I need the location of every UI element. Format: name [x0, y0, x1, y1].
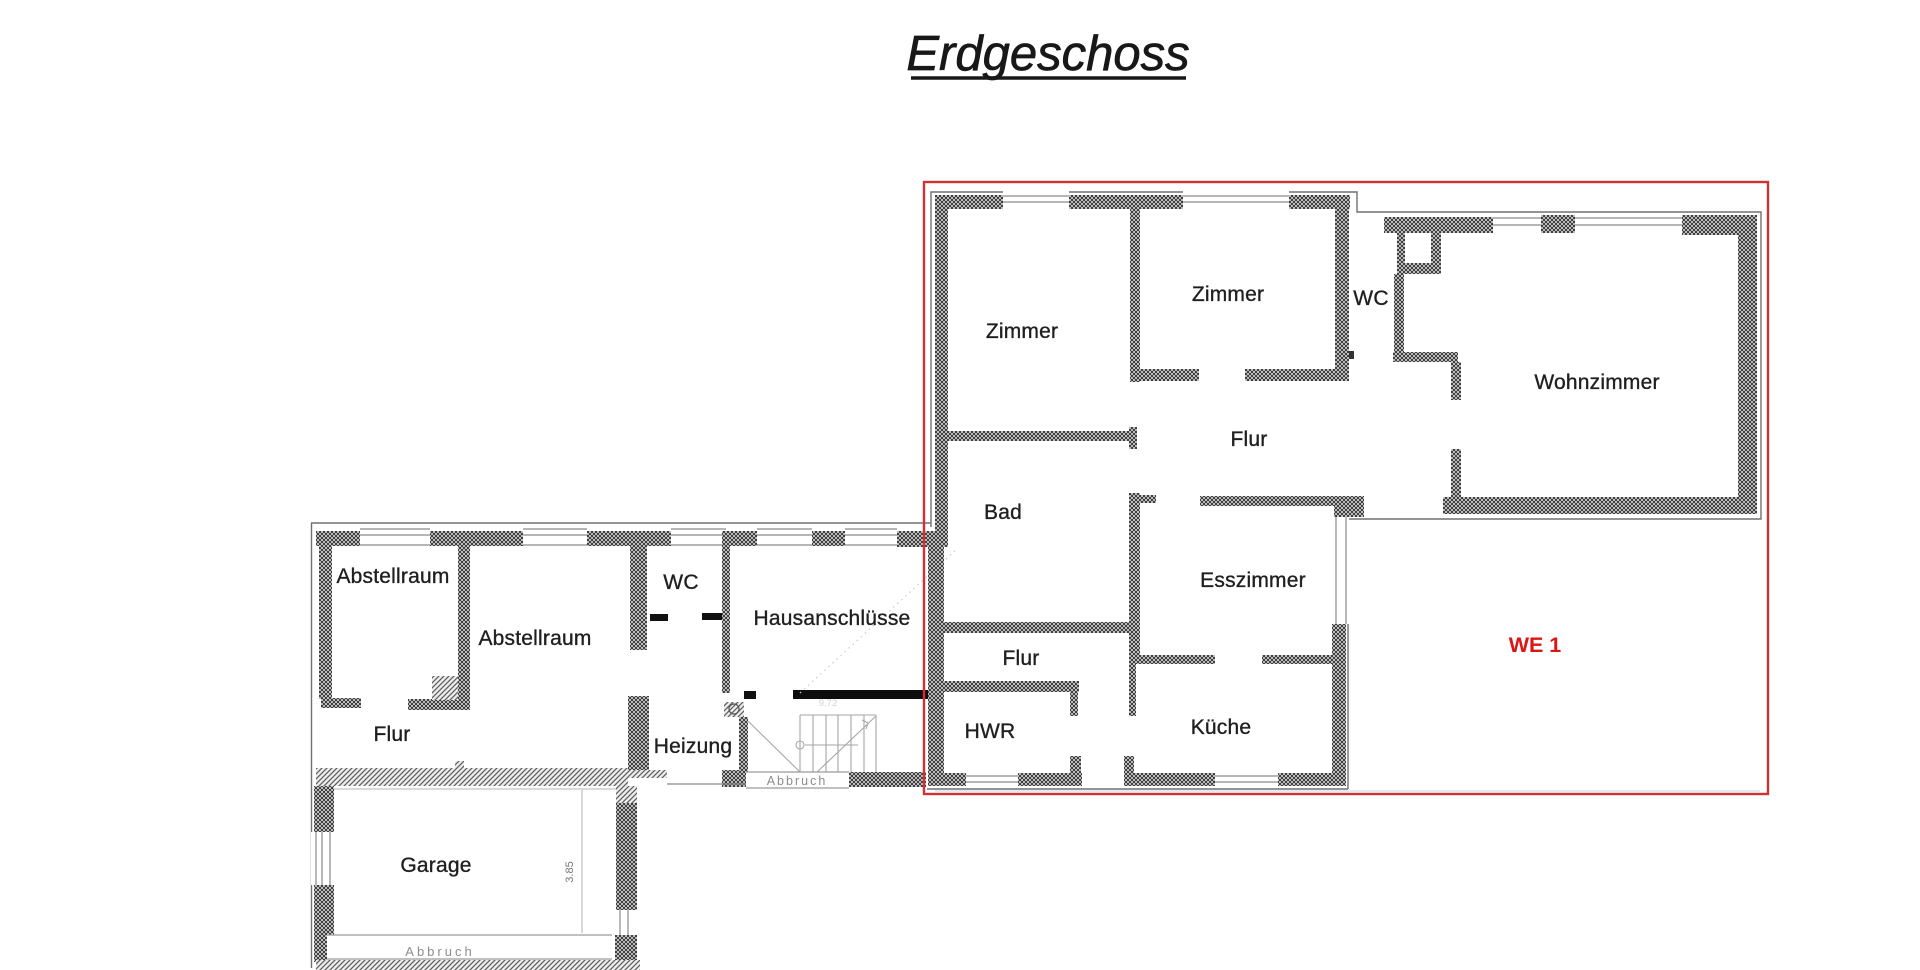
svg-text:Abbruch: Abbruch	[405, 944, 474, 959]
svg-text:9.72: 9.72	[819, 698, 838, 709]
svg-text:Esszimmer: Esszimmer	[1200, 569, 1306, 592]
svg-text:WE 1: WE 1	[1509, 633, 1562, 657]
svg-text:Wohnzimmer: Wohnzimmer	[1534, 371, 1659, 394]
svg-text:Flur: Flur	[374, 723, 411, 746]
svg-text:WC: WC	[663, 571, 698, 594]
svg-text:Küche: Küche	[1191, 716, 1252, 739]
svg-text:Garage: Garage	[400, 854, 471, 877]
svg-text:Hausanschlüsse: Hausanschlüsse	[754, 607, 911, 630]
svg-text:WC: WC	[1353, 287, 1388, 310]
svg-text:HWR: HWR	[965, 720, 1016, 743]
svg-text:Zimmer: Zimmer	[986, 320, 1058, 343]
svg-text:Abstellraum: Abstellraum	[336, 565, 449, 588]
svg-text:Flur: Flur	[1231, 428, 1268, 451]
svg-text:Flur: Flur	[1003, 647, 1040, 670]
svg-text:Erdgeschoss: Erdgeschoss	[906, 27, 1189, 81]
svg-text:Zimmer: Zimmer	[1192, 283, 1264, 306]
svg-text:Abstellraum: Abstellraum	[478, 627, 591, 650]
svg-text:Bad: Bad	[984, 501, 1022, 524]
svg-text:3.85: 3.85	[564, 861, 576, 882]
svg-text:Abbruch: Abbruch	[767, 774, 828, 788]
svg-text:Heizung: Heizung	[654, 735, 732, 758]
